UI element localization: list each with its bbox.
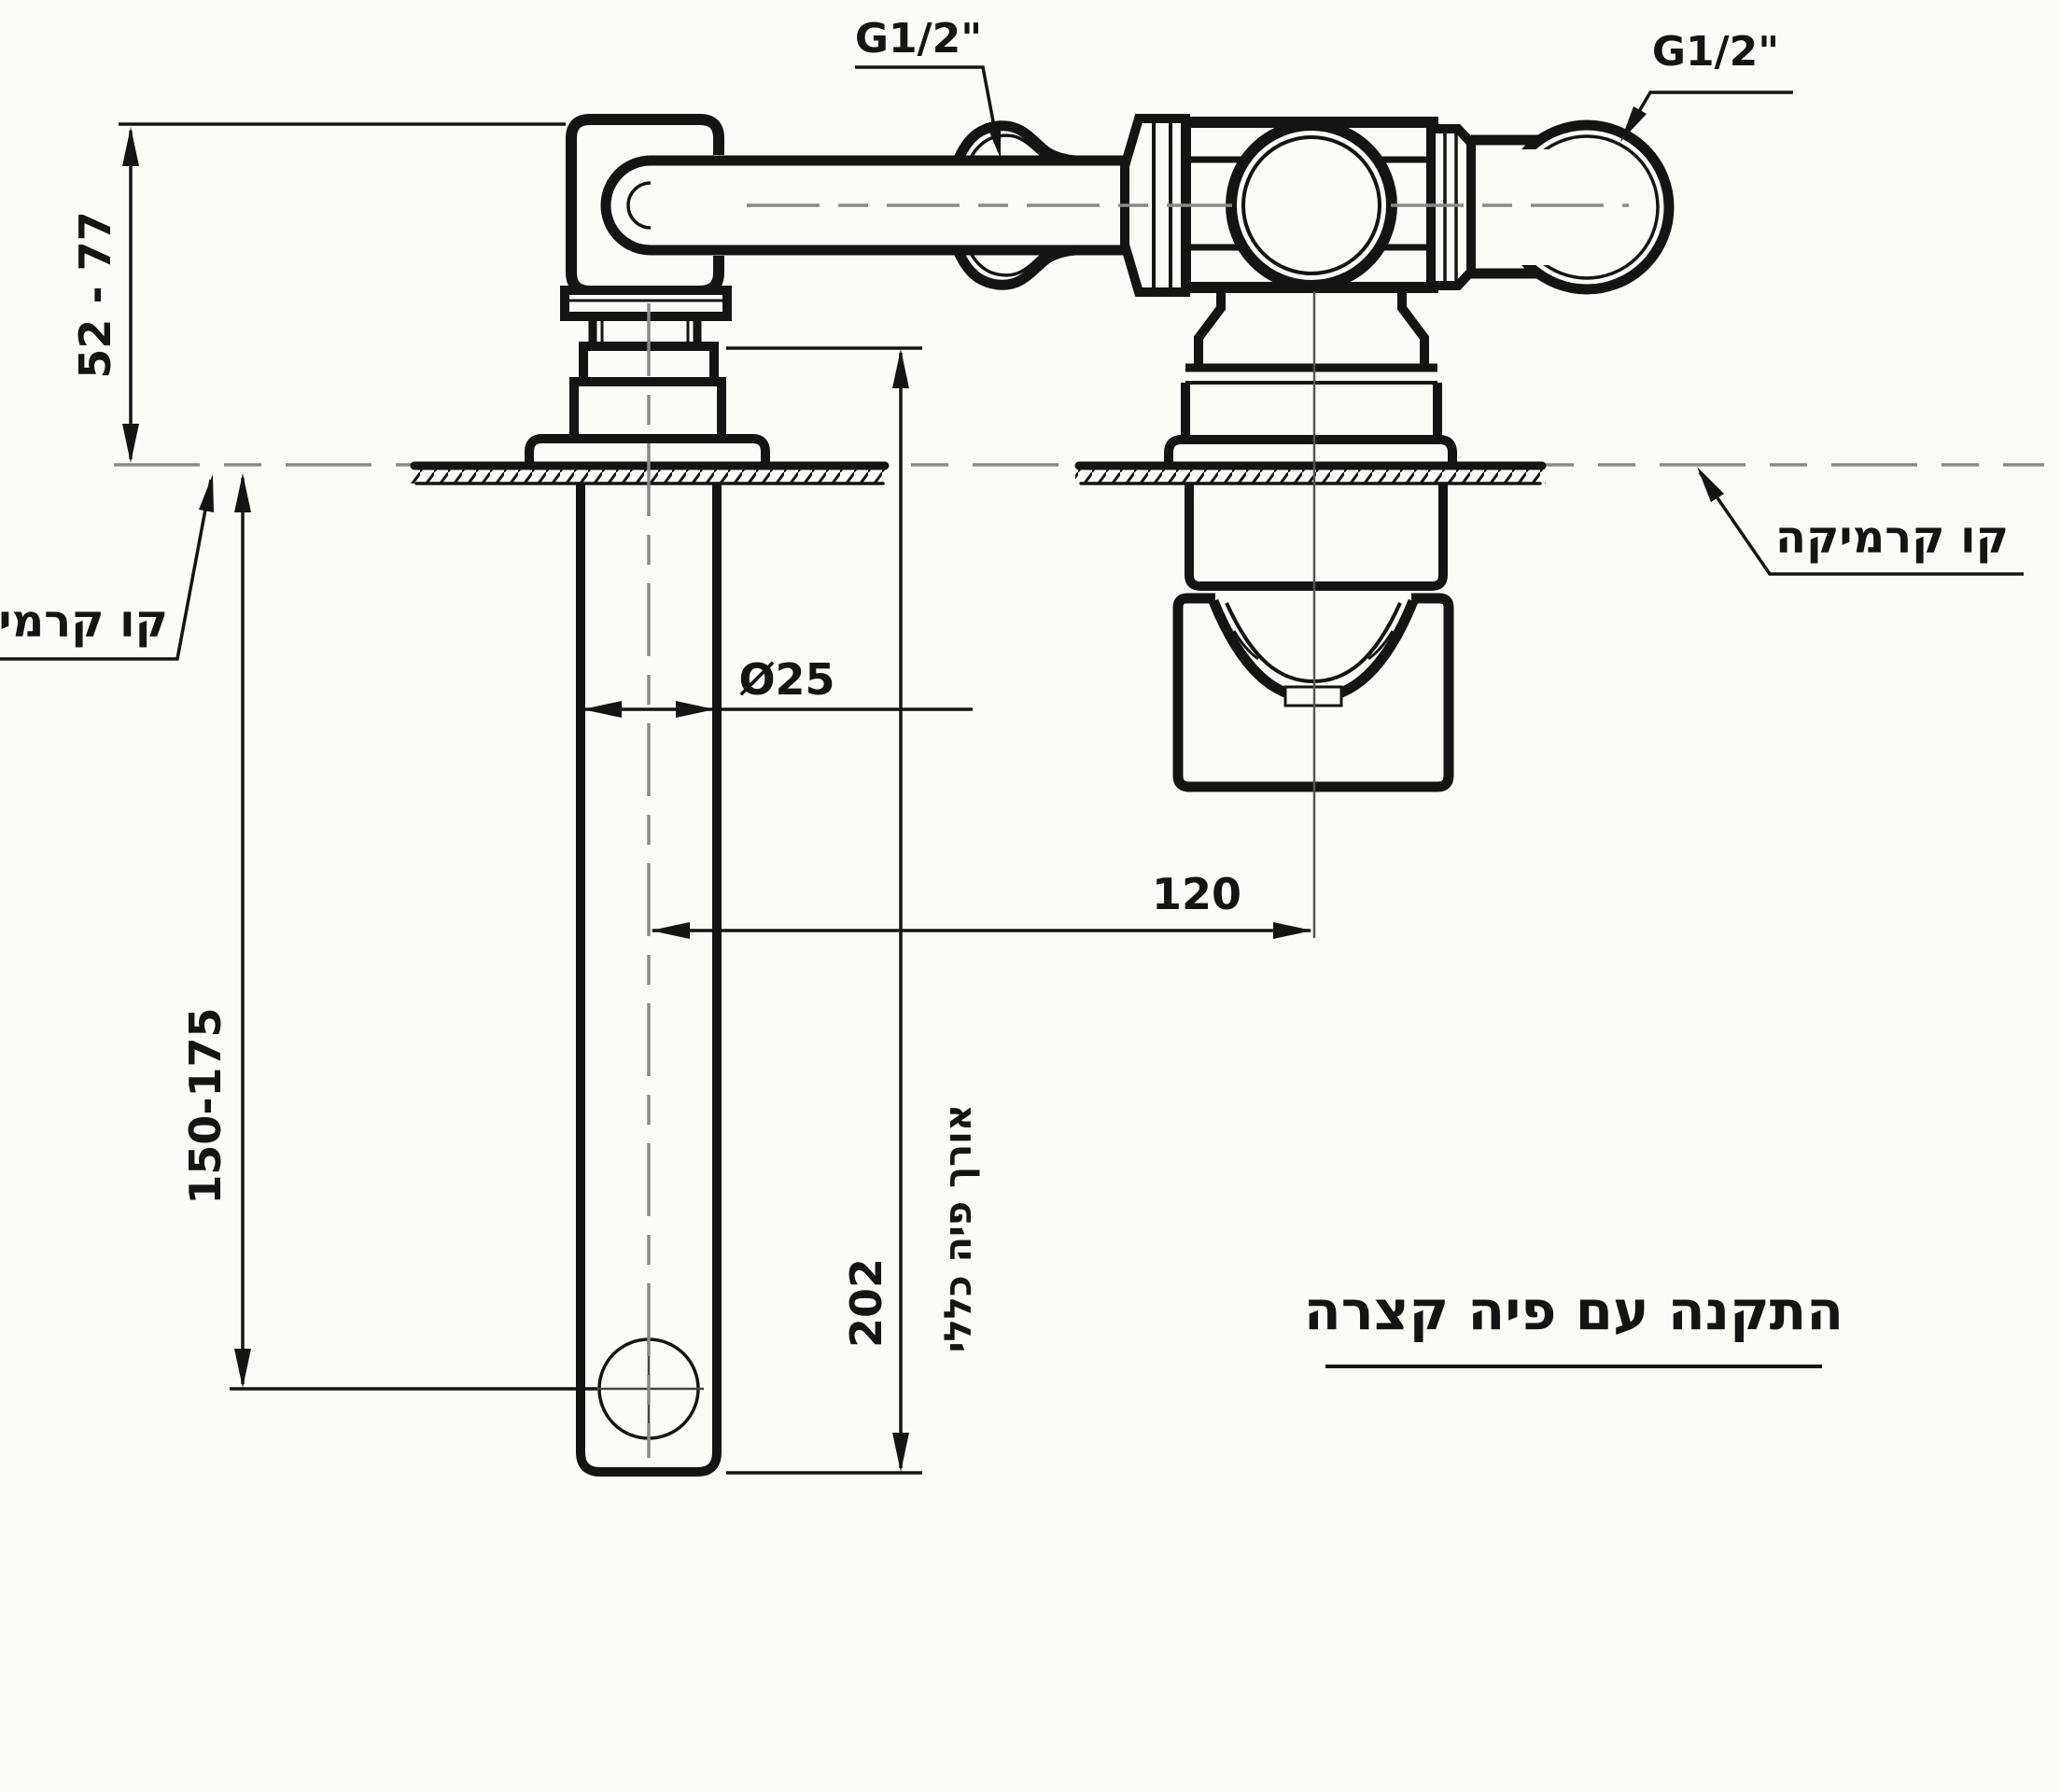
ceramic-left-text: קו קרמיקה [0,595,168,648]
g12-right-label: G1/2" [1652,28,1779,76]
drawing-page: 52 - 77 150-175 202 אורך פיה כללי Ø25 12… [0,0,2061,1792]
dimension-120: 120 [651,869,1312,939]
valve-mount-stack [1169,287,1452,464]
leader-g12-right: G1/2" [1620,28,1793,142]
dim-52-77-label: 52 - 77 [70,211,120,378]
faucet-body [411,119,1669,1472]
right-ball-fitting [1471,125,1669,289]
dim-202-label: 202 [841,1258,891,1348]
hex-nut-right [1431,129,1471,286]
drawing-title: התקנה עם פיה קצרה [1304,1279,1844,1366]
faucet-technical-drawing: 52 - 77 150-175 202 אורך פיה כללי Ø25 12… [0,0,2061,1792]
centerlines [649,205,1629,1458]
spout-length-note: אורך פיה כללי [937,1104,980,1352]
label-ceramic-right: קו קרמיקה [1697,467,2024,574]
label-ceramic-left: קו קרמיקה [0,474,214,659]
dimension-150-175: 150-175 [180,473,597,1389]
title-text: התקנה עם פיה קצרה [1304,1279,1844,1342]
dimension-diameter-25: Ø25 [582,654,973,718]
wall-hatch-right [1075,464,1546,483]
ceramic-right-text: קו קרמיקה [1775,511,2009,564]
dim-150-175-label: 150-175 [180,1007,231,1204]
dimension-52-77: 52 - 77 [70,124,566,463]
spout-elbow [571,119,719,291]
dim-120-label: 120 [1152,869,1241,919]
dim-diameter-label: Ø25 [738,654,834,705]
dimension-202: 202 אורך פיה כללי [726,348,980,1473]
g12-left-label: G1/2" [855,15,982,63]
